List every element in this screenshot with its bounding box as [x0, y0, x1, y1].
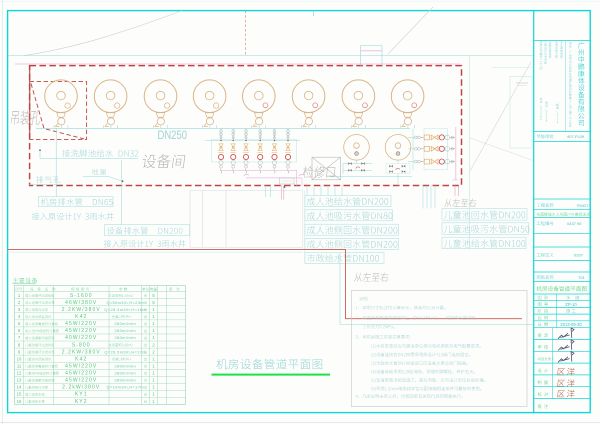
svg-text:45W/220V: 45W/220V [65, 328, 97, 334]
svg-text:0207: 0207 [574, 253, 584, 258]
svg-text:2.2kW/380V: 2.2kW/380V [62, 385, 100, 391]
svg-text:45W/220V: 45W/220V [65, 378, 97, 384]
svg-text:S-1600: S-1600 [70, 293, 93, 299]
svg-text:280ml/min: 280ml/min [114, 328, 136, 333]
svg-text:ZP-10: ZP-10 [565, 302, 577, 307]
svg-text:2.2KW/380V: 2.2KW/380V [62, 349, 101, 355]
svg-text:Q=10m3/h,H=17m: Q=10m3/h,H=17m [106, 385, 144, 390]
svg-text:280ml/min: 280ml/min [114, 363, 136, 368]
svg-text:15: 15 [17, 392, 22, 397]
svg-text:280ml/min: 280ml/min [114, 321, 136, 326]
svg-text:45W/220V: 45W/220V [65, 363, 97, 369]
svg-text:280ml/min: 280ml/min [114, 371, 136, 376]
svg-text:0437 95: 0437 95 [567, 221, 582, 226]
svg-text:14: 14 [17, 385, 22, 390]
svg-text:DN250: DN250 [158, 130, 188, 142]
svg-text:2013-09-30: 2013-09-30 [560, 322, 582, 327]
svg-text:T01: T01 [578, 275, 586, 280]
svg-text:Q=50m3/h,H=23m: Q=50m3/h,H=23m [106, 300, 144, 305]
svg-text:10: 10 [17, 356, 22, 361]
svg-text:Q=28.5m3/h,H=17m: Q=28.5m3/h,H=17m [104, 349, 146, 354]
svg-text:16: 16 [17, 399, 22, 404]
svg-text:40W/220V: 40W/220V [65, 335, 97, 341]
svg-text:46W/380V: 46W/380V [65, 300, 97, 306]
svg-text:45W/220V: 45W/220V [65, 371, 97, 377]
svg-text:12: 12 [17, 371, 22, 376]
svg-text:45W/220V: 45W/220V [65, 321, 97, 327]
svg-text:K42: K42 [75, 356, 87, 362]
svg-text:2.2KW/380V: 2.2KW/380V [62, 307, 101, 313]
svg-text:13: 13 [17, 378, 22, 383]
svg-text:280ml/min: 280ml/min [114, 335, 136, 340]
svg-text:P0427: P0427 [577, 203, 589, 208]
svg-text:KY1: KY1 [75, 392, 88, 398]
svg-text:Q=28.3m3/h,H=18m: Q=28.3m3/h,H=18m [104, 307, 146, 312]
svg-text:407-FL09: 407-FL09 [567, 134, 585, 139]
svg-text:11: 11 [17, 363, 22, 368]
svg-text:280ml/min: 280ml/min [114, 378, 136, 383]
svg-text:KY2: KY2 [75, 399, 88, 405]
svg-text:S-800: S-800 [72, 342, 91, 348]
svg-text:K42: K42 [75, 314, 87, 320]
